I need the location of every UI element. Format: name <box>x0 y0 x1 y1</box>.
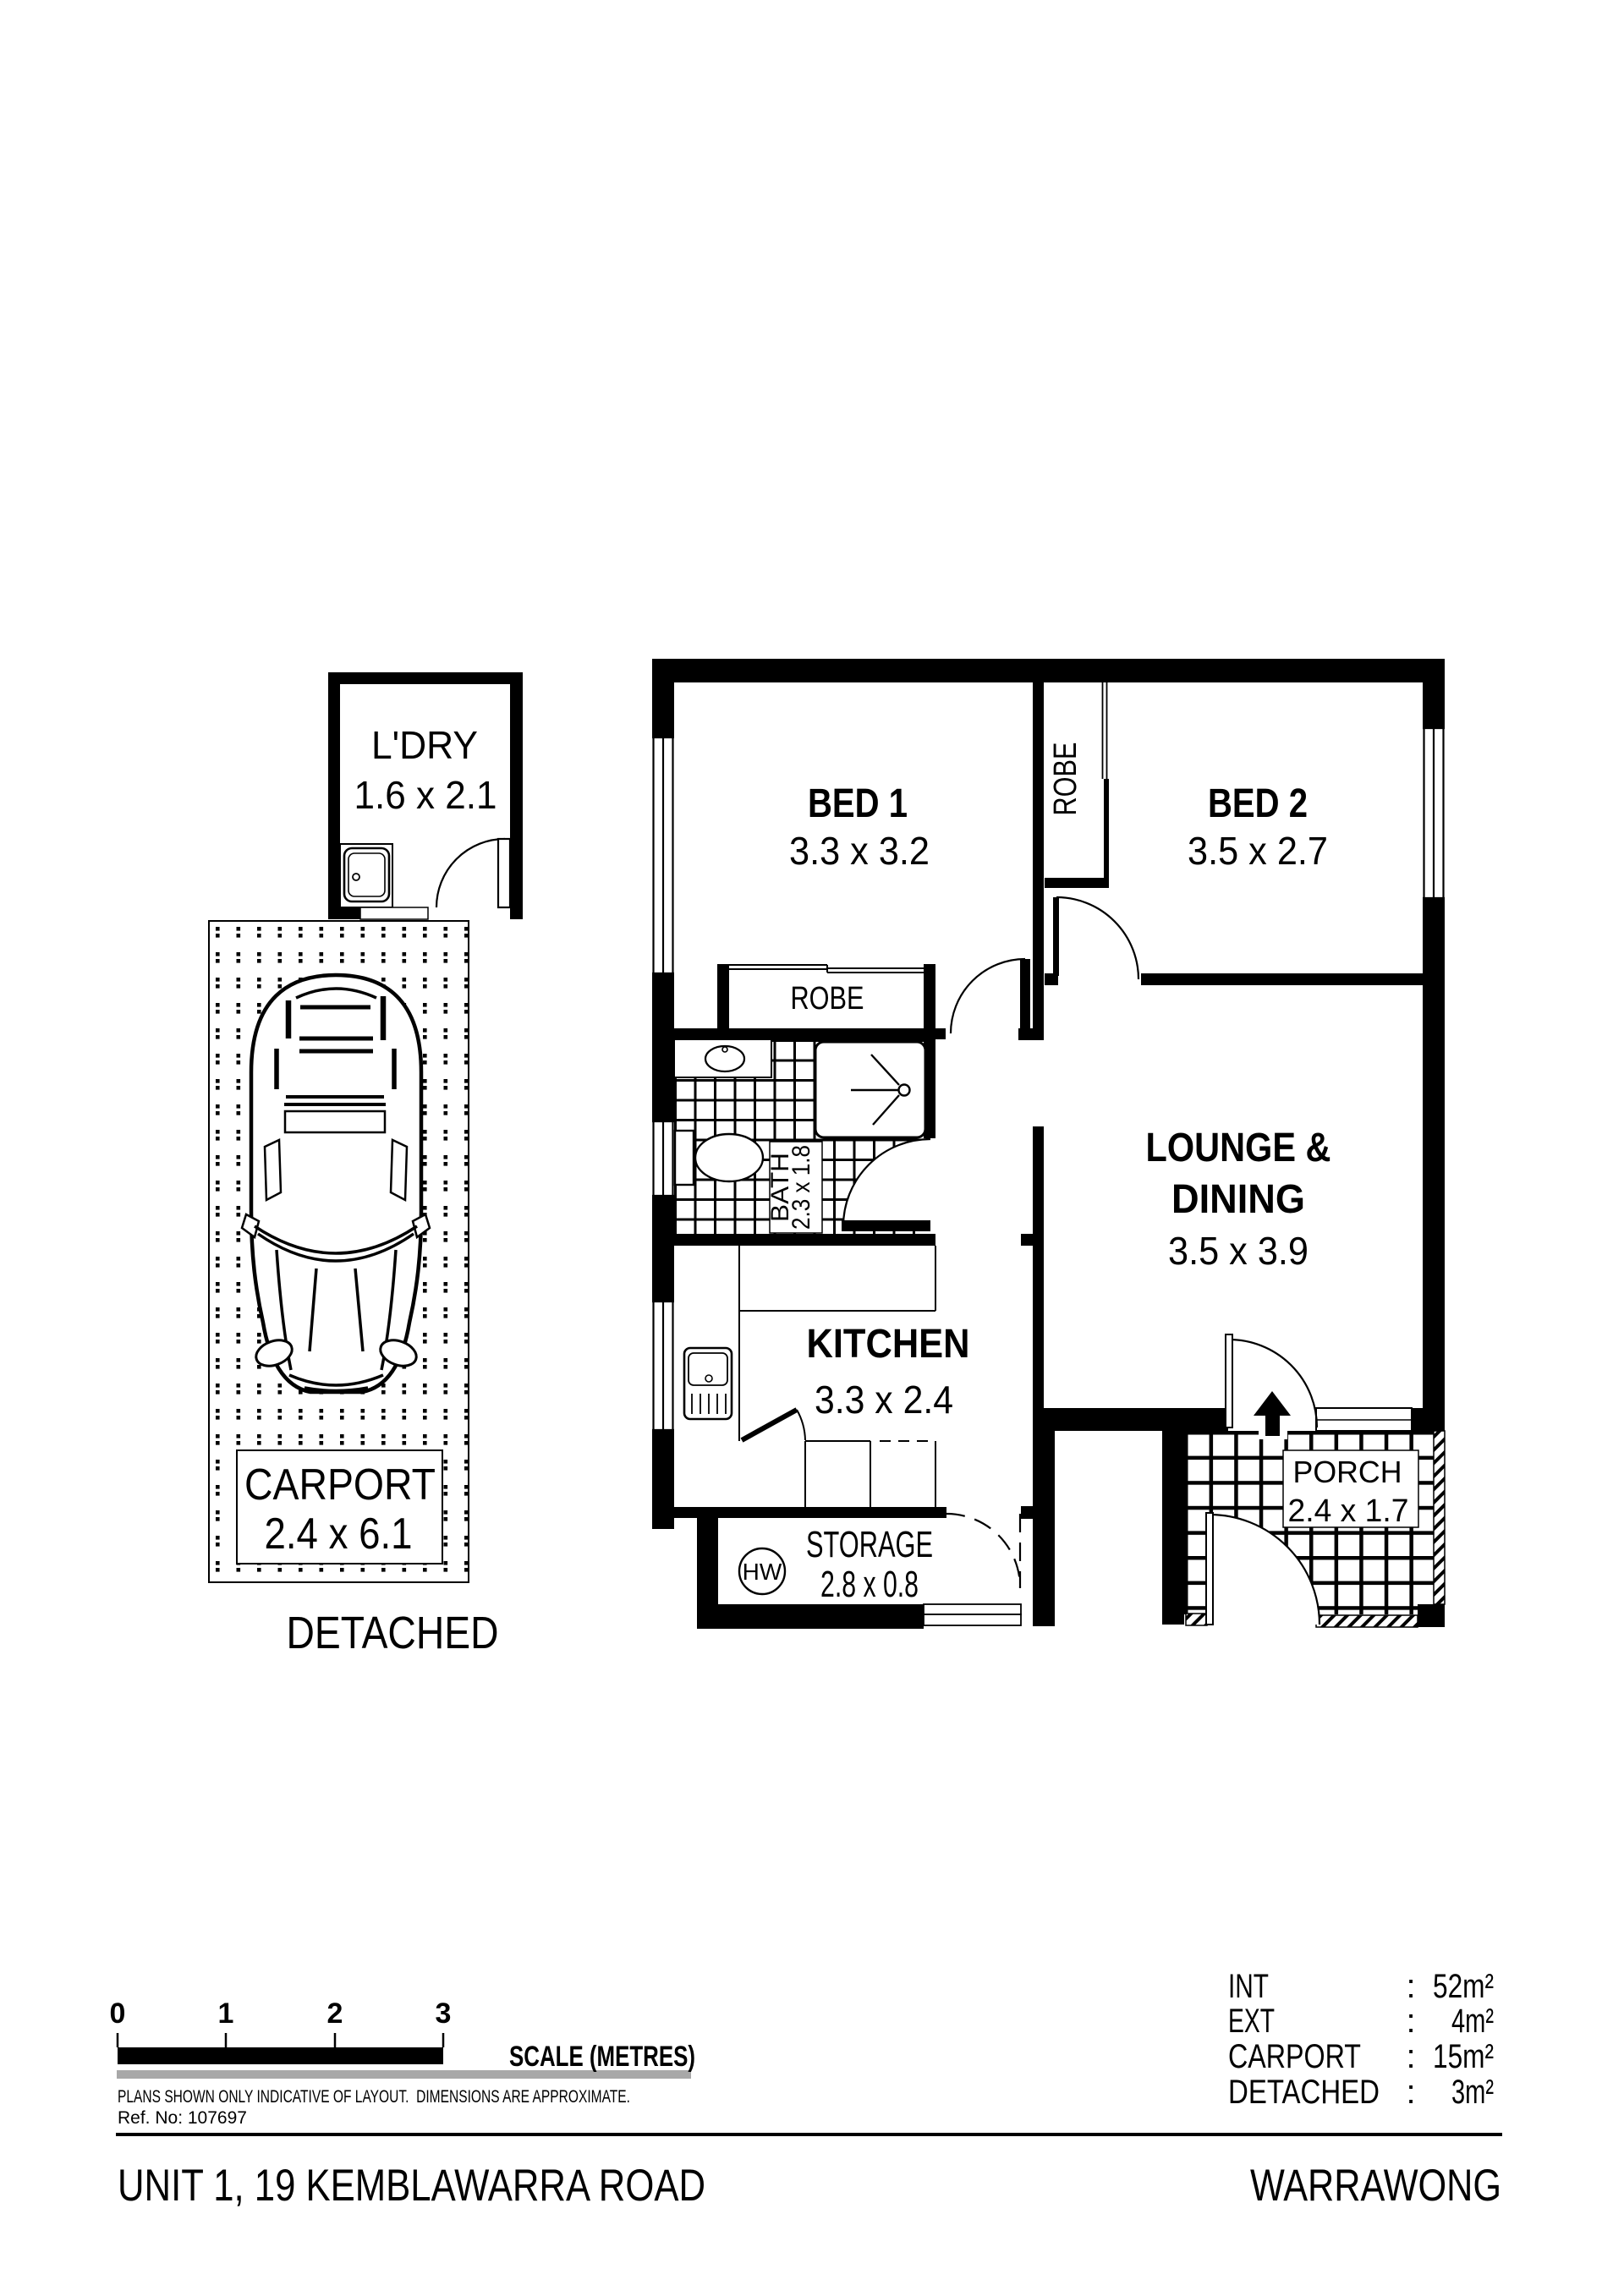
svg-text:BED 1: BED 1 <box>808 781 908 826</box>
svg-text:3.3 x 3.2: 3.3 x 3.2 <box>789 829 930 873</box>
svg-text:52m²: 52m² <box>1433 1968 1494 2005</box>
svg-text:2.3 x 1.8: 2.3 x 1.8 <box>787 1145 815 1230</box>
svg-text:WARRAWONG: WARRAWONG <box>1250 2161 1501 2211</box>
svg-text:15m²: 15m² <box>1433 2038 1494 2075</box>
svg-text:2.4 x 6.1: 2.4 x 6.1 <box>265 1510 413 1559</box>
svg-text:PORCH: PORCH <box>1293 1455 1402 1489</box>
svg-text:PLANS SHOWN ONLY INDICATIVE OF: PLANS SHOWN ONLY INDICATIVE OF LAYOUT. D… <box>118 2087 630 2107</box>
svg-text:UNIT 1, 19 KEMBLAWARRA ROAD: UNIT 1, 19 KEMBLAWARRA ROAD <box>118 2161 705 2211</box>
svg-text::: : <box>1406 2038 1415 2075</box>
svg-text:LOUNGE &: LOUNGE & <box>1146 1126 1331 1170</box>
svg-text:DETACHED: DETACHED <box>287 1608 499 1658</box>
svg-text:INT: INT <box>1228 1968 1269 2005</box>
svg-text:3.5 x 3.9: 3.5 x 3.9 <box>1168 1229 1309 1273</box>
svg-text:ROBE: ROBE <box>1048 743 1084 816</box>
svg-text:Ref. No: 107697: Ref. No: 107697 <box>118 2108 247 2128</box>
svg-text:1: 1 <box>218 1997 234 2030</box>
svg-text:SCALE (METRES): SCALE (METRES) <box>509 2041 695 2073</box>
svg-text:KITCHEN: KITCHEN <box>807 1322 970 1367</box>
svg-text::: : <box>1406 2074 1415 2111</box>
svg-text:DETACHED: DETACHED <box>1228 2074 1380 2111</box>
svg-text:2: 2 <box>327 1997 343 2030</box>
svg-text::: : <box>1406 1968 1415 2005</box>
svg-text:ROBE: ROBE <box>791 981 864 1016</box>
svg-text:1.6 x 2.1: 1.6 x 2.1 <box>354 773 497 817</box>
svg-text:DINING: DINING <box>1171 1177 1305 1222</box>
svg-text:EXT: EXT <box>1228 2003 1275 2040</box>
svg-text:2.4 x 1.7: 2.4 x 1.7 <box>1288 1493 1409 1529</box>
svg-text:0: 0 <box>110 1997 126 2030</box>
svg-text:3: 3 <box>436 1997 452 2030</box>
svg-text:L'DRY: L'DRY <box>371 723 478 767</box>
svg-text:3.5 x 2.7: 3.5 x 2.7 <box>1188 829 1328 873</box>
svg-text:2.8 x 0.8: 2.8 x 0.8 <box>820 1564 919 1605</box>
svg-text:3m²: 3m² <box>1451 2074 1494 2111</box>
svg-text:CARPORT: CARPORT <box>244 1460 436 1510</box>
svg-text:3.3 x 2.4: 3.3 x 2.4 <box>815 1378 953 1422</box>
svg-text:4m²: 4m² <box>1451 2003 1494 2040</box>
svg-text:BED 2: BED 2 <box>1208 781 1308 826</box>
svg-text:HW: HW <box>743 1559 782 1585</box>
svg-text:STORAGE: STORAGE <box>806 1524 933 1565</box>
svg-text:CARPORT: CARPORT <box>1228 2038 1361 2075</box>
svg-text::: : <box>1406 2003 1415 2040</box>
